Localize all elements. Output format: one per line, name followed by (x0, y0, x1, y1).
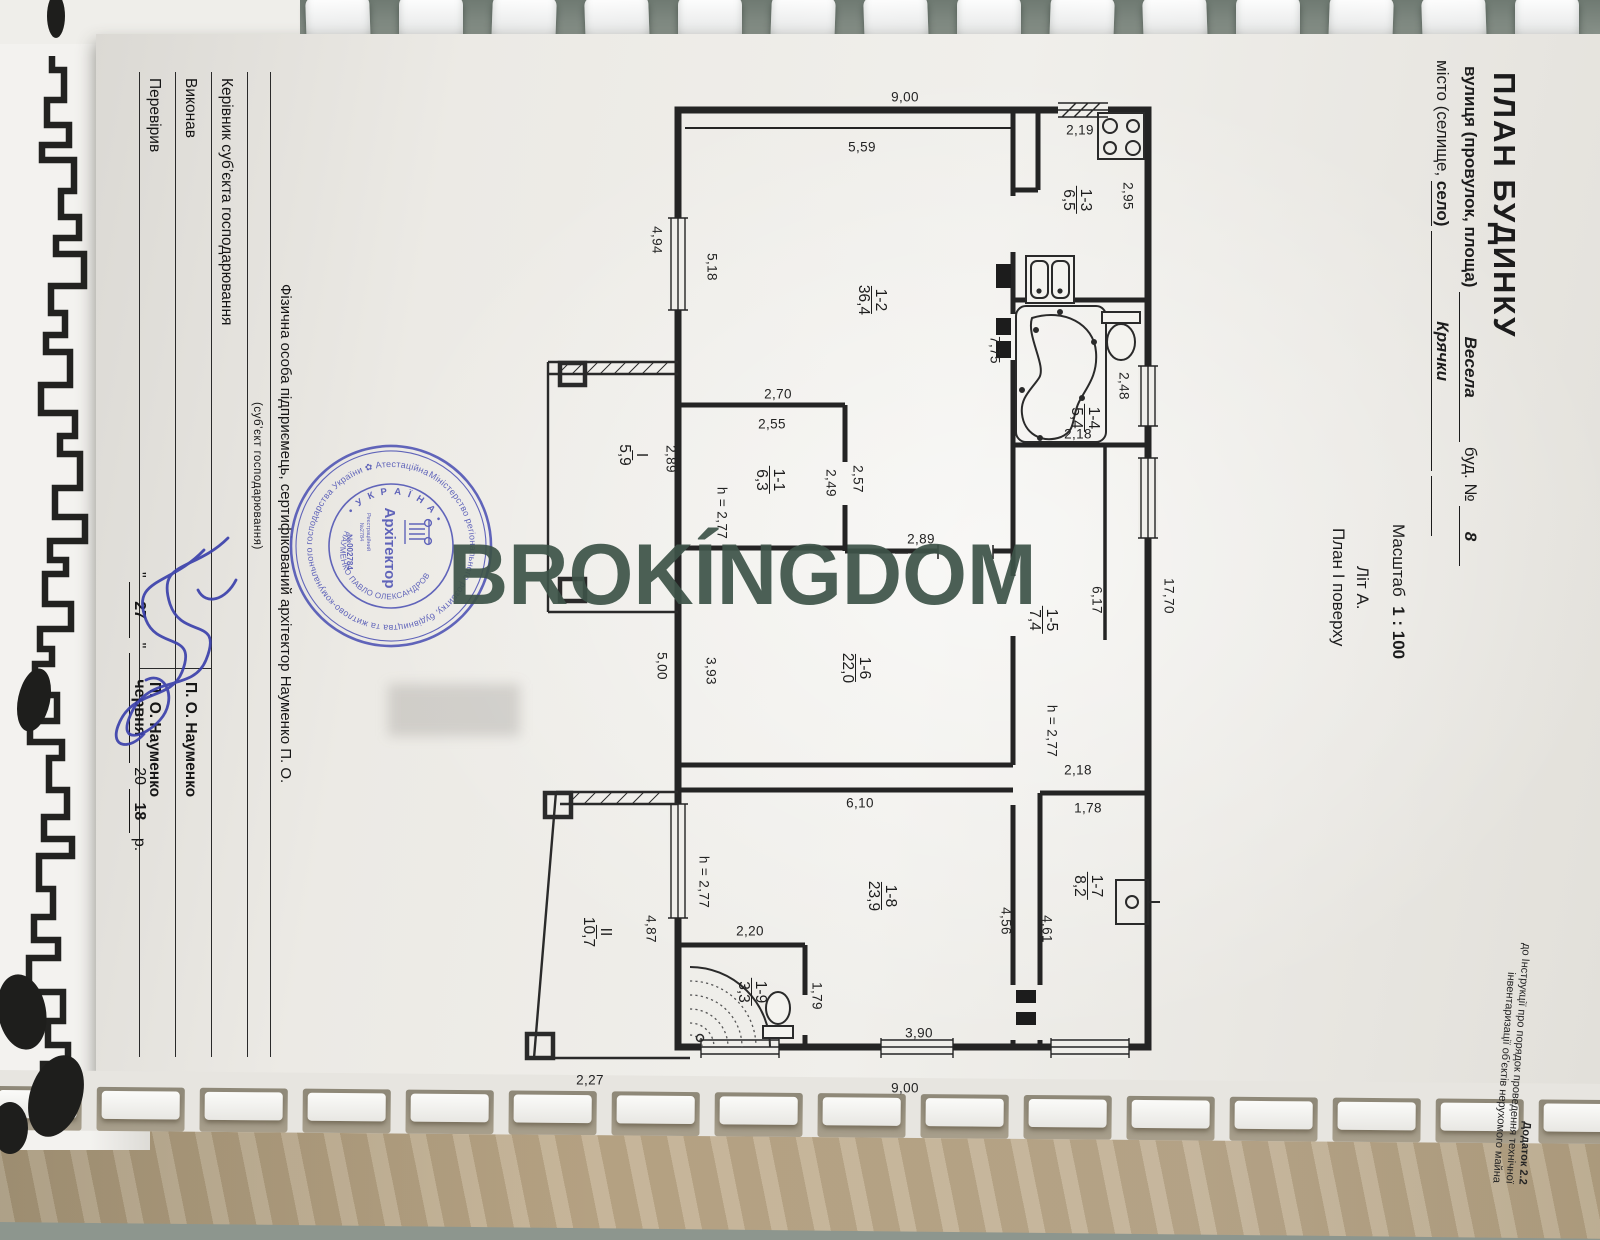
lit-line: Літ А. (1352, 566, 1372, 610)
porch-II (527, 792, 690, 1058)
city-label: місто (селище, (1433, 60, 1452, 176)
date-suffix: р. (131, 838, 148, 851)
city-value: Крячки (1431, 231, 1452, 471)
signatures (86, 520, 276, 770)
boiler-icon (1116, 880, 1160, 924)
stamp-number: №002784 (345, 534, 354, 570)
toilet-icon-bathroom (1102, 312, 1140, 360)
row-label-kerivnyk: Керівник суб’єкта господарювання (217, 78, 235, 325)
kitchen-stove-icon (1098, 113, 1144, 159)
stamp-center: Архітектор Реєстраційний №2784 №002784 (345, 508, 431, 589)
kitchen-sink-icon (1026, 256, 1074, 303)
bud-label: буд. № (1461, 447, 1480, 502)
doc-title: ПЛАН БУДИНКУ (1486, 72, 1522, 338)
bud-value: 8 (1459, 506, 1480, 566)
scale-value: 1 : 100 (1389, 606, 1408, 659)
stamp-reg2: №2784 (358, 523, 364, 541)
street-value: Весела (1459, 292, 1480, 442)
photo-of-floor-plan-document: { "header": { "title": "ПЛАН БУДИНКУ", "… (0, 0, 1600, 1200)
watermark: BROKÍNGDOM (448, 526, 1037, 625)
street-line: вулиця (провулок, площа) Весела буд. № 8 (1459, 66, 1480, 566)
stamp-reg1: Реєстраційний (365, 513, 372, 551)
street-label: вулиця (провулок, площа) (1461, 66, 1480, 287)
row-label-pereviryv: Перевірив (145, 78, 163, 152)
date-year: 18 (129, 789, 148, 833)
stamp-profession: Архітектор (381, 508, 398, 589)
city-selo: село) (1431, 181, 1452, 227)
row-label-vykonav: Виконав (181, 78, 199, 138)
shower-icon (690, 967, 770, 1047)
scale-line: Масштаб 1 : 100 (1388, 524, 1408, 659)
bathtub-icon (1016, 306, 1106, 442)
column-icon (405, 520, 431, 545)
scale-label: Масштаб (1389, 524, 1408, 597)
toilet-icon-wc (763, 992, 793, 1038)
city-line: місто (селище, село) Крячки (1431, 60, 1452, 536)
floor-line: План І поверху (1328, 528, 1348, 646)
